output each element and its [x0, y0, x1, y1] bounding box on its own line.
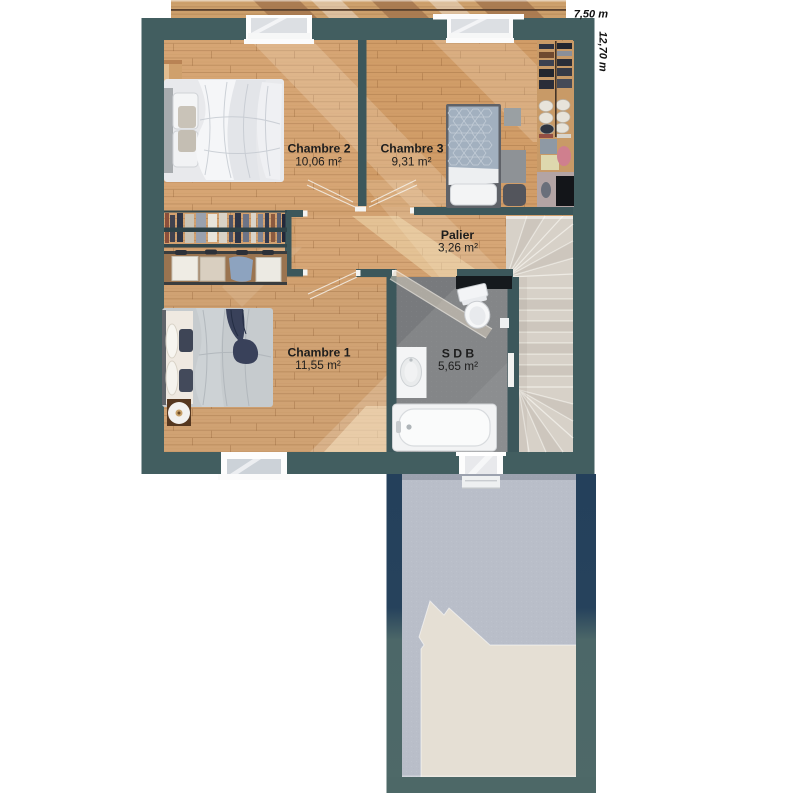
- svg-text:3,26 m²: 3,26 m²: [438, 241, 478, 255]
- svg-text:5,65 m²: 5,65 m²: [438, 359, 478, 373]
- svg-text:10,06 m²: 10,06 m²: [295, 155, 342, 169]
- svg-text:7,50 m: 7,50 m: [574, 9, 608, 21]
- svg-text:11,55 m²: 11,55 m²: [295, 358, 341, 372]
- svg-text:Chambre 2: Chambre 2: [288, 142, 351, 156]
- svg-text:Chambre 3: Chambre 3: [381, 142, 444, 156]
- svg-text:9,31 m²: 9,31 m²: [392, 155, 432, 169]
- svg-text:12,70 m: 12,70 m: [597, 31, 609, 72]
